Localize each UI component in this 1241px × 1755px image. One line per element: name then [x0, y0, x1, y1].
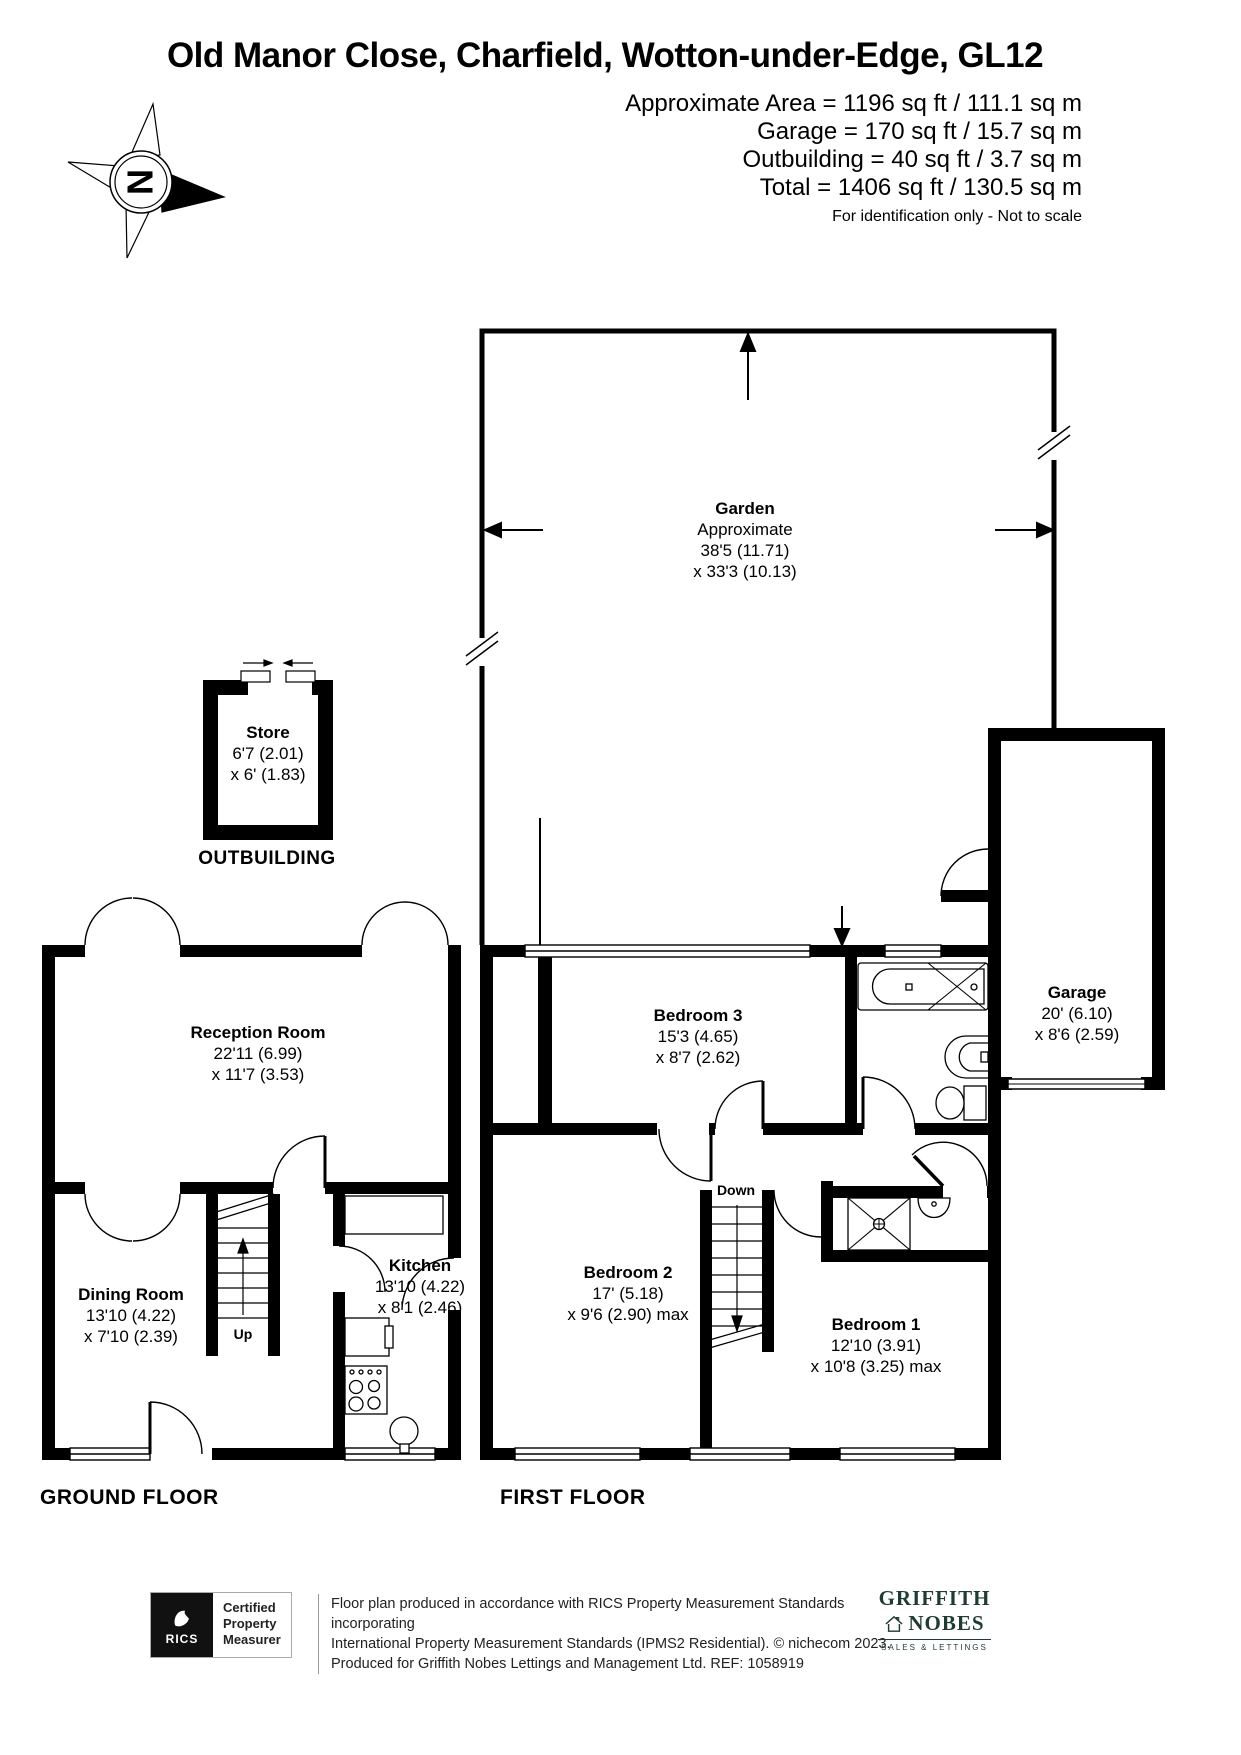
compass-north-letter: N — [120, 169, 161, 195]
room-name: Kitchen — [375, 1255, 465, 1276]
footer-line: International Property Measurement Stand… — [331, 1634, 906, 1654]
room-dimension: x 7'10 (2.39) — [78, 1326, 184, 1347]
agency-tagline: SALES & LETTINGS — [872, 1643, 997, 1652]
bath-icon — [858, 963, 988, 1010]
first-floor-title: FIRST FLOOR — [500, 1486, 646, 1510]
garage-door — [1008, 1079, 1145, 1089]
room-dimension: x 8'6 (2.59) — [1035, 1024, 1120, 1045]
first-floor-stairs — [706, 1205, 768, 1349]
rics-lion-icon — [169, 1604, 195, 1630]
ensuite-fixtures — [848, 1198, 950, 1250]
room-name: Bedroom 2 — [567, 1262, 688, 1283]
garage-label: Garage 20' (6.10) x 8'6 (2.59) — [1035, 982, 1120, 1045]
badge-line: Certified — [223, 1600, 281, 1616]
kitchen-stove-icon — [345, 1366, 387, 1414]
room-dimension: x 9'6 (2.90) max — [567, 1304, 688, 1325]
room-note: Approximate — [693, 519, 796, 540]
room-name: Bedroom 3 — [654, 1005, 743, 1026]
room-dimension: 13'10 (4.22) — [375, 1276, 465, 1297]
room-dimension: 17' (5.18) — [567, 1283, 688, 1304]
room-name: Garage — [1035, 982, 1120, 1003]
kitchen-fixtures — [345, 1196, 443, 1453]
store-sliding-doors — [241, 660, 315, 682]
room-dimension: x 6' (1.83) — [230, 764, 305, 785]
kitchen-label: Kitchen 13'10 (4.22) x 8'1 (2.46) — [375, 1255, 465, 1318]
bathroom-sink-icon — [945, 1036, 988, 1078]
room-dimension: 13'10 (4.22) — [78, 1305, 184, 1326]
compass-icon: N — [68, 104, 224, 258]
room-dimension: x 33'3 (10.13) — [693, 561, 796, 582]
rics-certification-badge: RICS Certified Property Measurer — [150, 1592, 292, 1658]
badge-line: Measurer — [223, 1632, 281, 1648]
ground-floor-stairs — [210, 1194, 274, 1318]
shower-icon — [848, 1198, 910, 1250]
footer-line: Floor plan produced in accordance with R… — [331, 1594, 906, 1634]
badge-line: Property — [223, 1616, 281, 1632]
room-dimension: 6'7 (2.01) — [230, 743, 305, 764]
toilet-icon — [936, 1086, 986, 1120]
bedroom2-label: Bedroom 2 17' (5.18) x 9'6 (2.90) max — [567, 1262, 688, 1325]
room-dimension: 38'5 (11.71) — [693, 540, 796, 561]
kitchen-counter — [345, 1318, 389, 1356]
kitchen-counter — [345, 1196, 443, 1234]
bedroom3-label: Bedroom 3 15'3 (4.65) x 8'7 (2.62) — [654, 1005, 743, 1068]
room-dimension: 22'11 (6.99) — [190, 1043, 325, 1064]
room-name: Dining Room — [78, 1284, 184, 1305]
room-dimension: 15'3 (4.65) — [654, 1026, 743, 1047]
ground-floor-doors — [85, 898, 454, 1454]
room-name: Store — [230, 722, 305, 743]
dining-room-label: Dining Room 13'10 (4.22) x 7'10 (2.39) — [78, 1284, 184, 1347]
footer-line: Produced for Griffith Nobes Lettings and… — [331, 1654, 906, 1674]
room-name: Garden — [693, 498, 796, 519]
store-label: Store 6'7 (2.01) x 6' (1.83) — [230, 722, 305, 785]
stairs-down-label: Down — [717, 1182, 755, 1198]
house-icon — [884, 1615, 904, 1633]
room-name: Reception Room — [190, 1022, 325, 1043]
agency-logo-rule — [878, 1639, 991, 1640]
room-dimension: 20' (6.10) — [1035, 1003, 1120, 1024]
room-dimension: 12'10 (3.91) — [811, 1335, 942, 1356]
ensuite-basin-icon — [918, 1198, 950, 1218]
rics-badge-text: Certified Property Measurer — [213, 1593, 291, 1657]
room-dimension: x 10'8 (3.25) max — [811, 1356, 942, 1377]
garden-label: Garden Approximate 38'5 (11.71) x 33'3 (… — [693, 498, 796, 582]
agency-name-top: GRIFFITH — [872, 1586, 997, 1611]
agency-logo: GRIFFITH NOBES SALES & LETTINGS — [872, 1586, 997, 1652]
bedroom1-label: Bedroom 1 12'10 (3.91) x 10'8 (3.25) max — [811, 1314, 942, 1377]
rics-wordmark: RICS — [166, 1632, 199, 1646]
stairs-up-label: Up — [234, 1326, 253, 1342]
room-name: Bedroom 1 — [811, 1314, 942, 1335]
outbuilding-title: OUTBUILDING — [198, 848, 335, 870]
reception-room-label: Reception Room 22'11 (6.99) x 11'7 (3.53… — [190, 1022, 325, 1085]
agency-name-bottom: NOBES — [908, 1611, 984, 1636]
room-dimension: x 8'1 (2.46) — [375, 1297, 465, 1318]
floorplan-document: Old Manor Close, Charfield, Wotton-under… — [0, 0, 1241, 1755]
room-dimension: x 11'7 (3.53) — [190, 1064, 325, 1085]
bathroom-fixtures — [858, 963, 988, 1120]
rics-logo: RICS — [151, 1593, 213, 1657]
room-dimension: x 8'7 (2.62) — [654, 1047, 743, 1068]
ground-floor-title: GROUND FLOOR — [40, 1486, 219, 1510]
footer-disclaimer: Floor plan produced in accordance with R… — [318, 1594, 906, 1674]
